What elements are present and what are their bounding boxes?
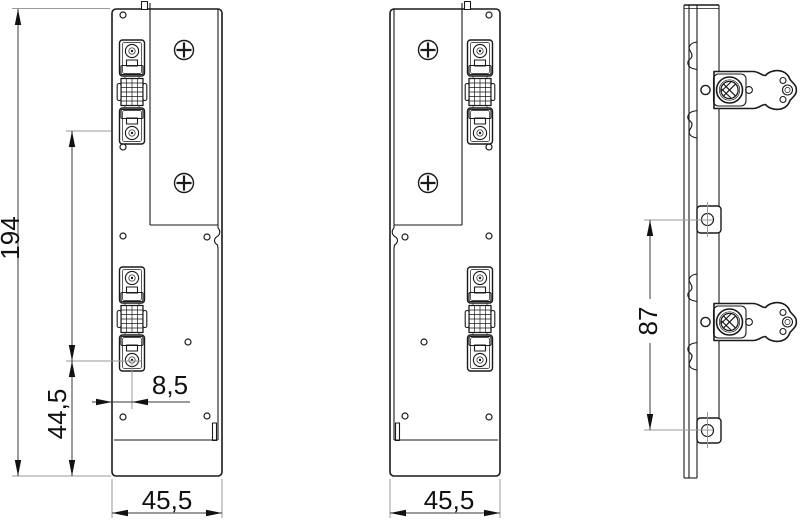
- side-hinge-arm-upper: [688, 42, 797, 138]
- side-view: [684, 5, 796, 478]
- dim-mirror-width: 45,5: [390, 485, 500, 516]
- technical-drawing: 194 44,5 8,5 45,5: [0, 0, 800, 520]
- dim-label-overall-height: 194: [0, 216, 25, 259]
- dim-pivot-chain: 44,5: [42, 131, 75, 476]
- dim-overall-height: 194: [0, 9, 25, 476]
- dim-front-width: 45,5: [112, 485, 222, 516]
- dim-tab-spacing: 87: [633, 220, 663, 430]
- dim-label-mirror-width: 45,5: [424, 485, 475, 515]
- front-view-right: [112, 2, 222, 477]
- side-hinge-arm-lower: [688, 274, 797, 370]
- front-view-left: [390, 2, 500, 477]
- dim-label-pivot-to-bottom: 44,5: [42, 389, 72, 440]
- dimensions: 194 44,5 8,5 45,5: [0, 9, 713, 519]
- dim-label-tab-spacing: 87: [633, 307, 663, 336]
- dim-label-front-width: 45,5: [142, 485, 193, 515]
- drawing-canvas: 194 44,5 8,5 45,5: [0, 0, 800, 520]
- dim-label-edge-to-hinge-axis: 8,5: [152, 370, 188, 400]
